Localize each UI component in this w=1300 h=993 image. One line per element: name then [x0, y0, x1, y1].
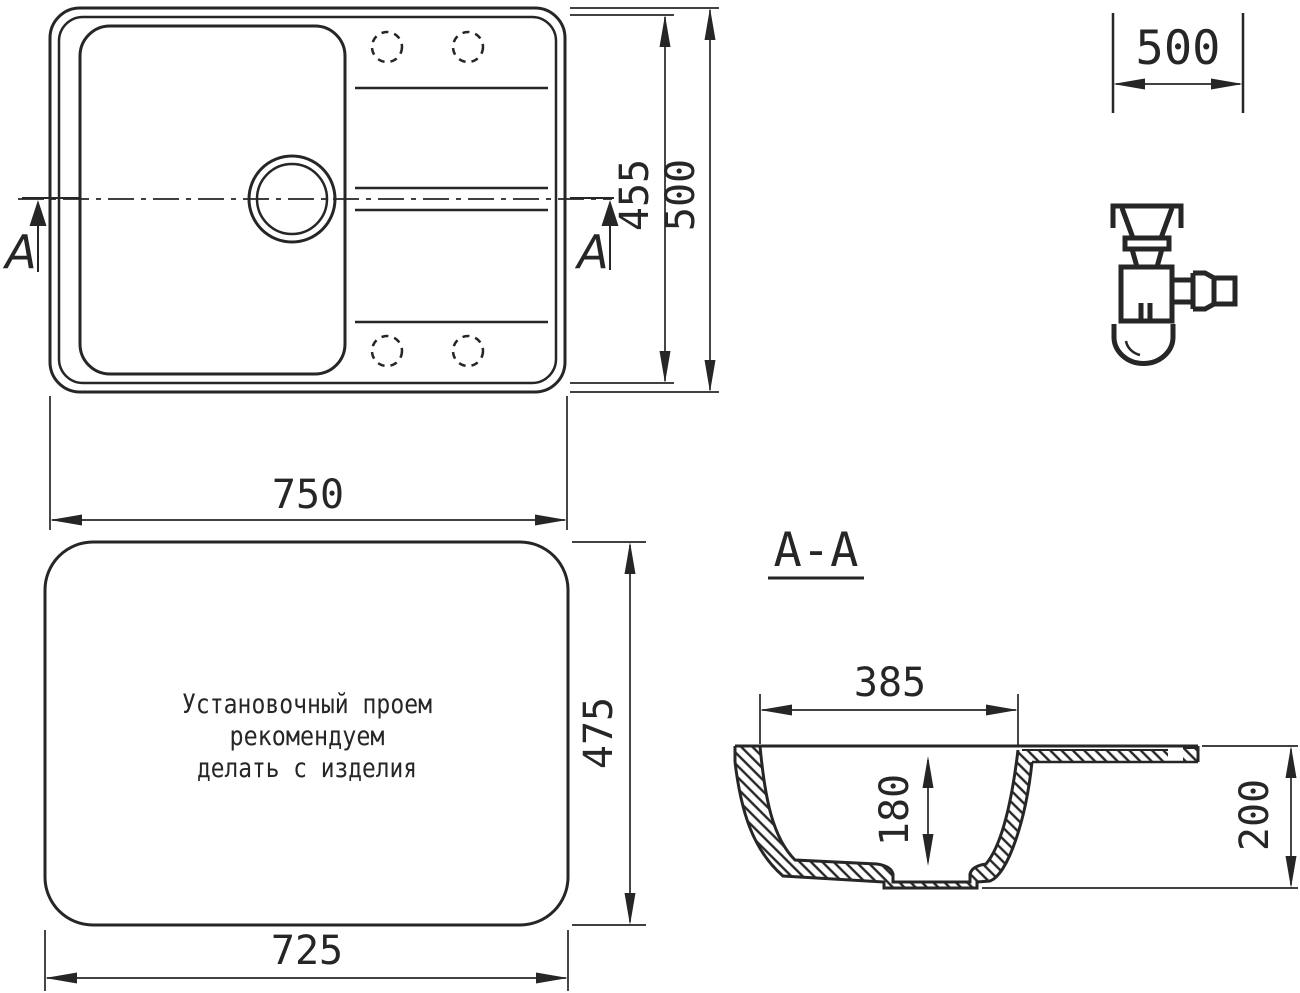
- dim-opening-height-475: 475: [572, 542, 646, 925]
- siphon-trap-icon: [1113, 206, 1235, 363]
- section-title: A-A: [774, 523, 859, 578]
- cutout-dim-500: 500: [1113, 13, 1243, 113]
- drainboard-hatch: [1022, 750, 1168, 762]
- dim-opening-width-725: 725: [45, 928, 568, 991]
- siphon-funnel: [1122, 208, 1172, 238]
- section-arrow-icon: [30, 200, 47, 226]
- siphon-body: [1121, 267, 1172, 321]
- dim-width-750: 750: [50, 396, 567, 530]
- dim-455-label: 455: [612, 159, 658, 231]
- dim-bowl-width-385: 385: [760, 660, 1018, 746]
- arrowhead: [535, 515, 567, 526]
- section-cut-left: A: [2, 198, 80, 279]
- siphon-outlet-pipe: [1172, 273, 1235, 309]
- siphon-neck: [1132, 249, 1162, 267]
- top-view: A A 455 500: [2, 8, 719, 530]
- installation-note-line1: Установочный проем: [182, 689, 432, 720]
- cutout-500-label: 500: [1136, 21, 1221, 76]
- arrowhead: [1211, 79, 1243, 90]
- dim-200-label: 200: [1232, 779, 1278, 851]
- arrowhead: [986, 705, 1018, 716]
- sink-outer-edge: [50, 8, 565, 392]
- section-letter: A: [574, 225, 608, 279]
- installation-note-line2: рекомендуем: [230, 721, 385, 752]
- siphon-cup-detail: [1126, 341, 1140, 355]
- sink-bowl-outline: [80, 26, 345, 374]
- arrowhead: [923, 834, 934, 866]
- dim-500-label: 500: [658, 159, 704, 231]
- arrowhead: [660, 351, 671, 383]
- siphon-flange: [1125, 238, 1169, 249]
- sink-cross-section: [735, 746, 1198, 888]
- arrowhead: [1286, 856, 1297, 888]
- arrowhead: [50, 515, 82, 526]
- dim-385-label: 385: [854, 660, 926, 706]
- dim-750-label: 750: [272, 472, 344, 518]
- technical-drawing-page: A A 455 500: [0, 0, 1300, 993]
- arrowhead: [625, 893, 636, 925]
- section-view: A-A 385: [735, 523, 1298, 888]
- tap-hole-marking: [453, 336, 483, 366]
- arrowhead: [760, 705, 792, 716]
- installation-note-line3: делать с изделия: [197, 753, 417, 784]
- tap-hole-marking: [372, 336, 402, 366]
- arrowhead: [705, 8, 716, 40]
- dim-bowl-depth-180: 180: [872, 756, 934, 866]
- tap-hole-marking: [372, 32, 402, 62]
- arrowhead: [1113, 79, 1145, 90]
- arrowhead: [1286, 746, 1297, 778]
- arrowhead: [660, 15, 671, 47]
- rim-hatch: [735, 746, 760, 762]
- section-letter: A: [2, 225, 36, 279]
- tap-hole-marking: [453, 32, 483, 62]
- siphon-body-detail: [1141, 303, 1150, 320]
- dim-725-label: 725: [271, 928, 343, 974]
- arrowhead: [45, 973, 77, 984]
- arrowhead: [536, 973, 568, 984]
- edge-block-hatch: [1183, 748, 1198, 762]
- arrowhead: [625, 542, 636, 574]
- arrowhead: [705, 360, 716, 392]
- siphon-cup: [1114, 324, 1173, 363]
- dim-180-label: 180: [872, 774, 918, 846]
- sink-technical-drawing: A A 455 500: [0, 0, 1300, 993]
- sink-rim-edge: [59, 17, 556, 383]
- arrowhead: [923, 756, 934, 788]
- installation-view: Установочный проем рекомендуем делать с …: [45, 542, 646, 991]
- dim-475-label: 475: [576, 697, 622, 769]
